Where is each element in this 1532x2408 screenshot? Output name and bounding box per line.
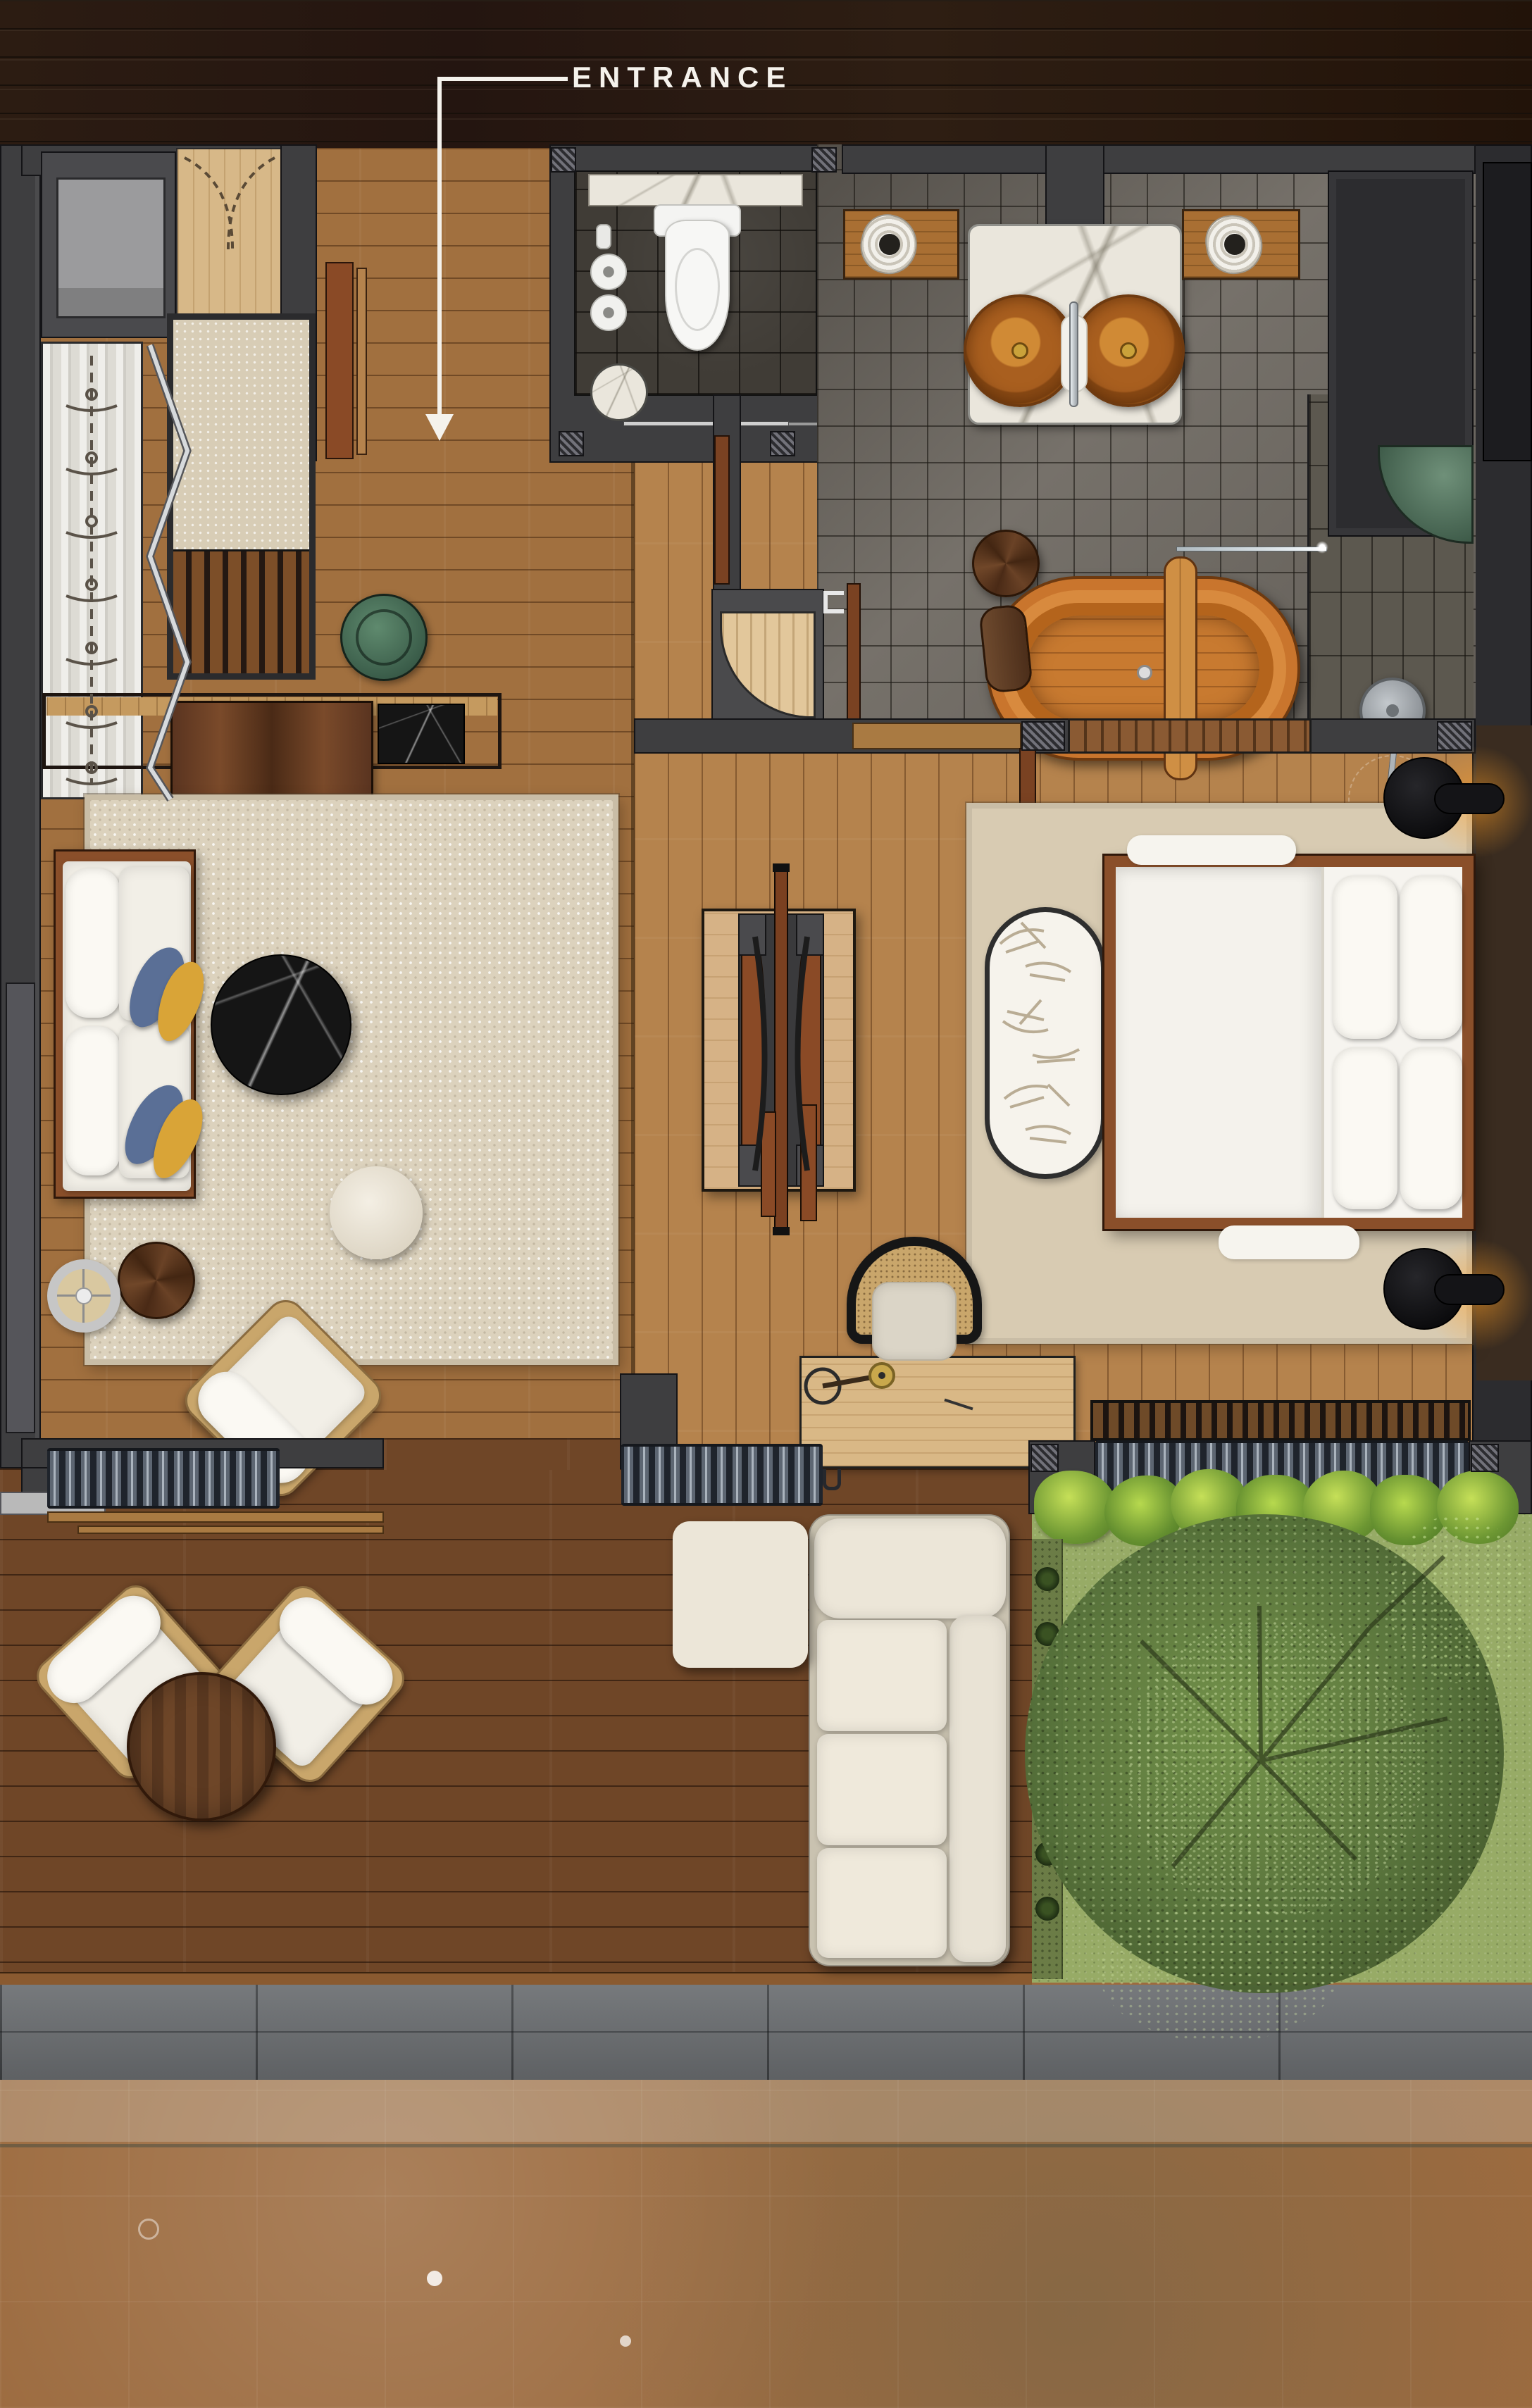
wardrobe-cabinet-top [56,177,166,318]
bath-door-leaf [847,583,861,720]
planter-plant [1035,1567,1059,1591]
folding-door-mid [621,1444,823,1506]
wall-hatch [1437,721,1472,751]
tub-headrest [978,604,1033,694]
vanity-faucet [1069,301,1078,407]
sliding-panel [761,1111,776,1217]
bath-door-post [714,435,730,585]
wc-spray [596,224,611,249]
sofa-back-cushion [66,868,120,1018]
sheet-spill [1127,835,1296,865]
threshold-bar [77,1526,384,1534]
entry-door-leaf-2 [356,268,367,455]
sofa-back-cushion [66,1026,120,1175]
sheet-spill [1219,1225,1359,1259]
sliding-panel [800,1104,817,1221]
wc-marble-shelf [588,174,803,206]
coffee-table [211,954,351,1095]
bed-pillow [1333,1047,1397,1209]
wc-sliding-door [623,421,789,426]
divider-rail-cap [773,1227,790,1235]
pool-bubble [427,2271,442,2286]
bedroom-door-threshold [852,723,1021,749]
folding-door-hook [823,1469,841,1490]
divider-corner-block [738,913,766,956]
deck-walkway [384,1438,620,1470]
wall-hatch [811,147,837,173]
deck-round-table [127,1672,276,1821]
outdoor-sectional-sofa [809,1514,1010,1966]
bed-pillow [1333,875,1397,1039]
toilet-paper-roll [590,254,627,290]
toilet-paper-roll [590,294,627,331]
wall-hatch [1021,721,1065,751]
pool-shallow-ledge [0,2080,1532,2142]
side-table [118,1242,195,1319]
shower-head-center [1386,704,1399,717]
wall-hatch [551,147,576,173]
sofa-seat [817,1734,947,1845]
bedside-lamp [1434,1274,1505,1305]
sofa-seat [817,1848,947,1958]
basin-drain [1011,342,1028,359]
pool-ledge-line [0,2144,1532,2147]
threshold-bar [47,1511,384,1523]
floor-lamp [47,1259,120,1333]
bed [1104,856,1474,1229]
wall-hatch [770,431,795,456]
bedside-lamp [1434,783,1505,814]
divider-rail-cap [773,863,790,872]
deck-edge-strip [0,1972,1032,1986]
rolled-towel-core [1224,234,1245,255]
pool-bubble [620,2335,631,2347]
pool-ring [138,2219,159,2240]
floor-plan: ENTRANCE [0,0,1532,2408]
left-wall-window [6,982,35,1433]
entry-wall-column [280,144,317,340]
duvet-fold [1321,867,1324,1218]
floor-seam [631,338,635,1440]
entry-door-leaf [325,262,354,459]
wall-hatch [1030,1444,1059,1472]
glass-sparkle [1316,541,1328,554]
rolled-towel-core [879,234,900,255]
tub-drain [1137,665,1152,680]
folding-door-left [47,1448,280,1509]
entry-door-floor [176,148,282,339]
basin-drain [1120,342,1137,359]
wall-hatch [1471,1444,1499,1472]
sofa-seat [817,1620,947,1731]
bath-stool [972,530,1040,597]
chair-seat [872,1282,957,1361]
bath-top-wall [842,144,1476,174]
entrance-label: ENTRANCE [572,61,792,94]
duvet [1116,867,1323,1218]
wall-hatch [559,431,584,456]
closet-bench-slats [173,549,309,673]
tree-canopy-over-pool [1099,1902,1338,2042]
coping-joint [0,2031,1532,2033]
sofa-right-back [949,1616,1006,1962]
right-dark-panel [1483,162,1532,461]
sofa [54,849,196,1199]
bed-pillow [1400,1047,1462,1209]
leaf-oval-rug [985,907,1106,1179]
pouf [330,1166,423,1259]
sofa-back-bar [814,1518,1006,1618]
desk-chair [847,1237,982,1368]
divider-rail [774,868,788,1231]
glass-screen [1176,547,1327,551]
tub-platform-slats [1068,718,1312,754]
green-tray-ring [356,609,412,666]
foot-bench-slats [1090,1400,1471,1441]
tree-canopy-sparse [1388,1514,1528,1683]
ottoman [673,1521,808,1668]
lamp-center [75,1287,92,1304]
bed-pillow [1400,875,1462,1039]
wc-stool [590,363,648,421]
marble-tray [378,704,465,764]
planter-plant [1035,1897,1059,1921]
tree-canopy-light [1127,1620,1423,1916]
divider-corner-block [796,913,824,956]
